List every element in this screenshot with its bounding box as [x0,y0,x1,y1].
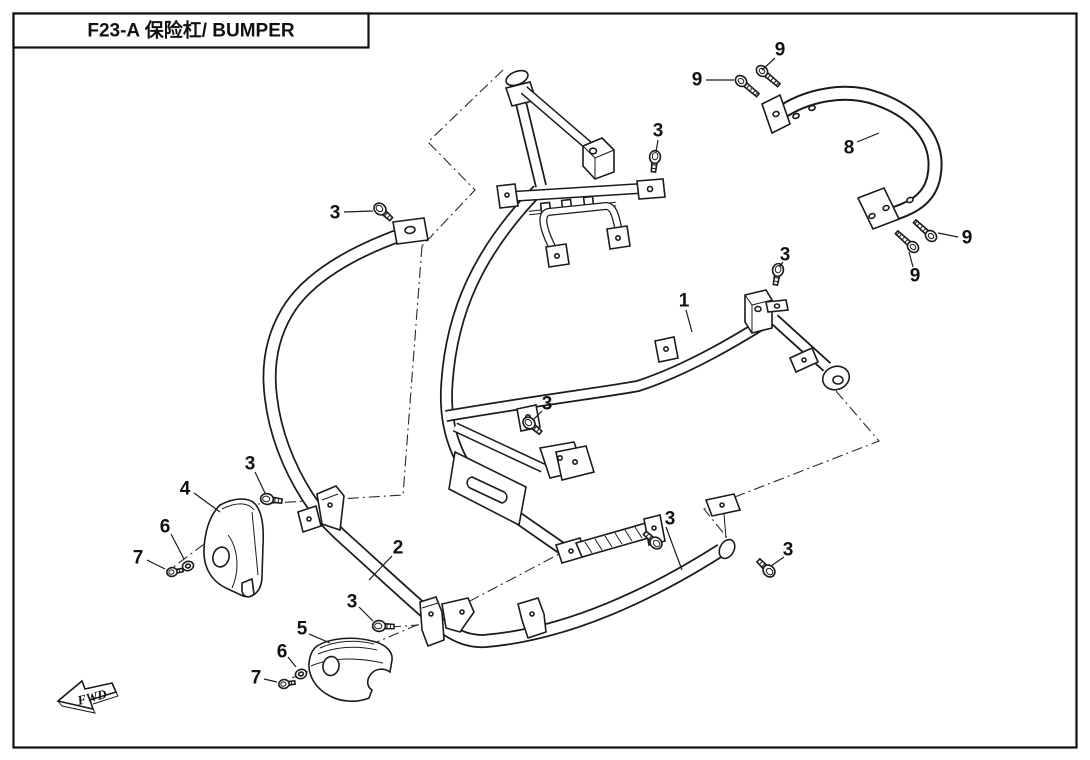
rear-bar-right-end-cap [858,188,899,229]
mount-hole [775,304,780,308]
callout-label-3: 3 [245,454,256,475]
flange-bolt [770,263,784,286]
socket-bolt [754,63,782,89]
callout-label-4: 4 [180,479,191,500]
page-title: F23-A 保险杠/ BUMPER [87,19,295,42]
mount-hole [505,193,509,197]
callout-label-2: 2 [393,538,404,559]
mount-hole [530,612,534,616]
callout-label-5: 5 [297,619,308,640]
callout-label-3: 3 [542,394,553,415]
tube-wing-bracket [442,598,474,632]
socket-bolt [733,73,761,99]
mount-hole [720,503,724,507]
washer [294,668,307,680]
flange-bolt [755,557,778,580]
callout-7-leader-hex-bolt [264,679,277,682]
flange-bolt [260,493,283,507]
hex-bolt [166,566,183,577]
flange-bolt [372,620,394,632]
mount-hole [429,612,433,616]
fasteners [166,150,784,689]
rear-bumper-bar [762,93,935,229]
callout-label-1: 1 [679,291,690,312]
mount-hole [802,358,806,362]
left-cover [204,499,263,597]
lower-bumper-tube [270,218,740,646]
callout-1-leader-main-bumper-frame [686,310,692,332]
phantom-right-zigzag [704,391,879,540]
callout-label-9: 9 [775,40,786,61]
right-cover [309,638,392,701]
mount-hole [307,517,311,521]
callout-3-leader-flange-bolt [666,527,682,570]
bumper-parts-diagram: FWD F23-A 保险杠/ BUMPER 399839931343672333… [0,0,1090,760]
mount-hole [569,549,573,553]
socket-bolt [911,218,938,244]
mount-hole [664,347,668,351]
phantom-zigzag-top [422,70,503,246]
fwd-arrow: FWD [58,681,118,713]
callout-3-leader-flange-bolt [359,607,373,621]
mount-hole [405,226,416,234]
callout-label-8: 8 [844,138,855,159]
callout-9-leader-socket-bolt [762,58,775,70]
mount-hole [648,187,653,192]
flange-bolt [372,201,395,223]
tube-bend-clamp [420,597,444,646]
callout-4-leader-left-cover [194,493,220,512]
mount-hole [555,254,559,258]
callout-6-leader-washer [171,534,184,559]
callout-label-3: 3 [347,592,358,613]
mount-hole [590,148,597,154]
cover-hook [242,579,254,597]
callout-7-leader-hex-bolt [147,560,165,569]
mount-hole [328,503,332,507]
callout-5-leader-right-cover [309,634,330,643]
main-bumper-frame [446,68,853,563]
callout-8-leader-rear-bumper-bar [857,133,879,142]
mount-hole [616,236,620,240]
socket-bolt [893,229,920,255]
mount-hole [460,610,464,614]
callout-label-3: 3 [783,540,794,561]
callout-label-3: 3 [665,509,676,530]
callout-label-6: 6 [160,517,171,538]
mount-hole [833,376,843,384]
mount-hole [573,460,577,464]
callout-label-7: 7 [133,548,144,569]
mount-hole [558,456,562,460]
callout-3-leader-flange-bolt [255,472,265,493]
callout-label-7: 7 [251,668,262,689]
flange-bolt [648,150,661,172]
mount-hole [755,307,761,312]
mount-hole [652,526,656,530]
callout-label-3: 3 [653,121,664,142]
hex-bolt [278,678,295,689]
callout-3-leader-flange-bolt [344,211,373,212]
callout-9-leader-socket-bolt [938,233,958,237]
callout-label-9: 9 [962,228,973,249]
callout-label-6: 6 [277,642,288,663]
callout-label-3: 3 [330,203,341,224]
parts-diagram-page: FWD F23-A 保险杠/ BUMPER 399839931343672333… [0,0,1090,760]
callout-label-3: 3 [780,245,791,266]
callout-label-9: 9 [692,70,703,91]
callout-label-9: 9 [910,266,921,287]
block-bracket [583,138,614,179]
callout-6-leader-washer [288,657,296,667]
